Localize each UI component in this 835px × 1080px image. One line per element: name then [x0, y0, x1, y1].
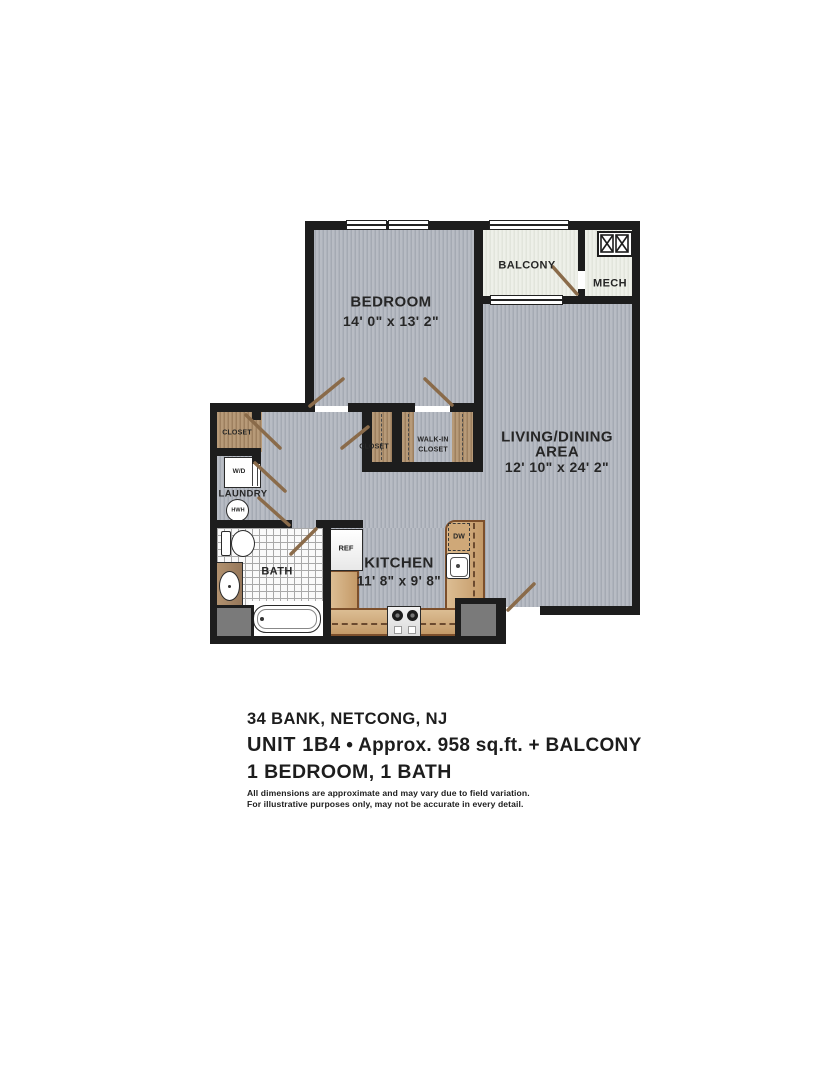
- disclaimer-line2: For illustrative purposes only, may not …: [247, 799, 642, 810]
- utility-shaft-block: [214, 605, 254, 639]
- refrigerator-label: REF: [339, 544, 354, 552]
- bedroom-label: BEDROOM: [350, 295, 431, 310]
- bedroom-window-left: [346, 220, 387, 230]
- bottom-outer-wall: [210, 636, 506, 644]
- balcony-label: BALCONY: [498, 261, 555, 272]
- address-line: 34 BANK, NETCONG, NJ: [247, 710, 642, 729]
- title-block: 34 BANK, NETCONG, NJ UNIT 1B4 • Approx. …: [247, 710, 642, 809]
- right-outer-wall: [632, 221, 640, 615]
- vanity-sink-drain: [228, 585, 231, 588]
- mid-closet-bottom-wall: [362, 462, 483, 472]
- walkin-rod-left: [408, 414, 409, 460]
- stove-front-knob-left: [394, 626, 402, 634]
- laundry-label: LAUNDRY: [219, 489, 268, 499]
- kitchen-faucet-dot: [456, 564, 460, 568]
- stove-burner-left: [392, 610, 403, 621]
- living-dims: 12' 10" x 24' 2": [505, 460, 609, 474]
- mid-closet-top-wall: [348, 403, 415, 412]
- kitchen-label: KITCHEN: [364, 556, 433, 571]
- stove-front-knob-right: [408, 626, 416, 634]
- cabinet-dashed-line-vertical: [473, 523, 475, 606]
- mid-closet-label: CLOSET: [359, 444, 389, 451]
- toilet-tank: [221, 531, 231, 556]
- bath-label: BATH: [261, 567, 292, 578]
- living-label-line1: LIVING/DINING: [501, 430, 613, 445]
- dishwasher-label: DW: [453, 534, 465, 541]
- mid-closet-rod: [381, 414, 382, 460]
- walkin-rod-right: [462, 414, 463, 460]
- stove-burner-right: [407, 610, 418, 621]
- bath-top-wall: [210, 520, 292, 528]
- living-bottom-wall: [540, 606, 640, 615]
- laundry-right-stub: [252, 448, 261, 464]
- mid-closet-floor: [372, 412, 392, 462]
- washer-dryer-label: W/D: [233, 469, 246, 476]
- disclaimer-line1: All dimensions are approximate and may v…: [247, 788, 642, 799]
- bedroom-window-right: [388, 220, 429, 230]
- bedroom-right-wall: [474, 221, 483, 412]
- kitchen-dims: 11' 8" x 9' 8": [357, 574, 441, 588]
- kitchen-top-stub-wall: [323, 520, 363, 528]
- config-line: 1 BEDROOM, 1 BATH: [247, 761, 642, 784]
- bath-right-wall: [323, 520, 331, 644]
- unit-line: UNIT 1B4 • Approx. 958 sq.ft. + BALCONY: [247, 734, 642, 757]
- bedroom-dims: 14' 0" x 13' 2": [343, 314, 439, 328]
- bedroom-left-wall: [305, 221, 314, 412]
- hall-closet-right-stub: [252, 403, 261, 420]
- hvac-unit-icon: [597, 231, 633, 257]
- unit-number: UNIT 1B4: [247, 734, 341, 756]
- floor-plan-page: REF DW W/D HWH: [0, 0, 835, 1080]
- walkin-label-line1: WALK-IN: [417, 437, 448, 444]
- toilet-bowl: [231, 530, 255, 557]
- entry-step-wall: [498, 598, 506, 644]
- hall-closet-label: CLOSET: [222, 430, 252, 437]
- hall-closet-bottom-wall: [210, 448, 258, 456]
- walkin-label-line2: CLOSET: [418, 447, 448, 454]
- living-label-line2: AREA: [535, 445, 579, 460]
- hall-top-wall: [210, 403, 315, 412]
- unit-details: • Approx. 958 sq.ft. + BALCONY: [341, 735, 642, 756]
- water-heater-label: HWH: [231, 508, 244, 514]
- mech-partition-upper: [578, 229, 585, 271]
- balcony-sliding-door: [490, 295, 563, 305]
- balcony-railing: [489, 220, 569, 230]
- bathtub-faucet-dot: [260, 617, 264, 621]
- mech-label: MECH: [593, 279, 627, 290]
